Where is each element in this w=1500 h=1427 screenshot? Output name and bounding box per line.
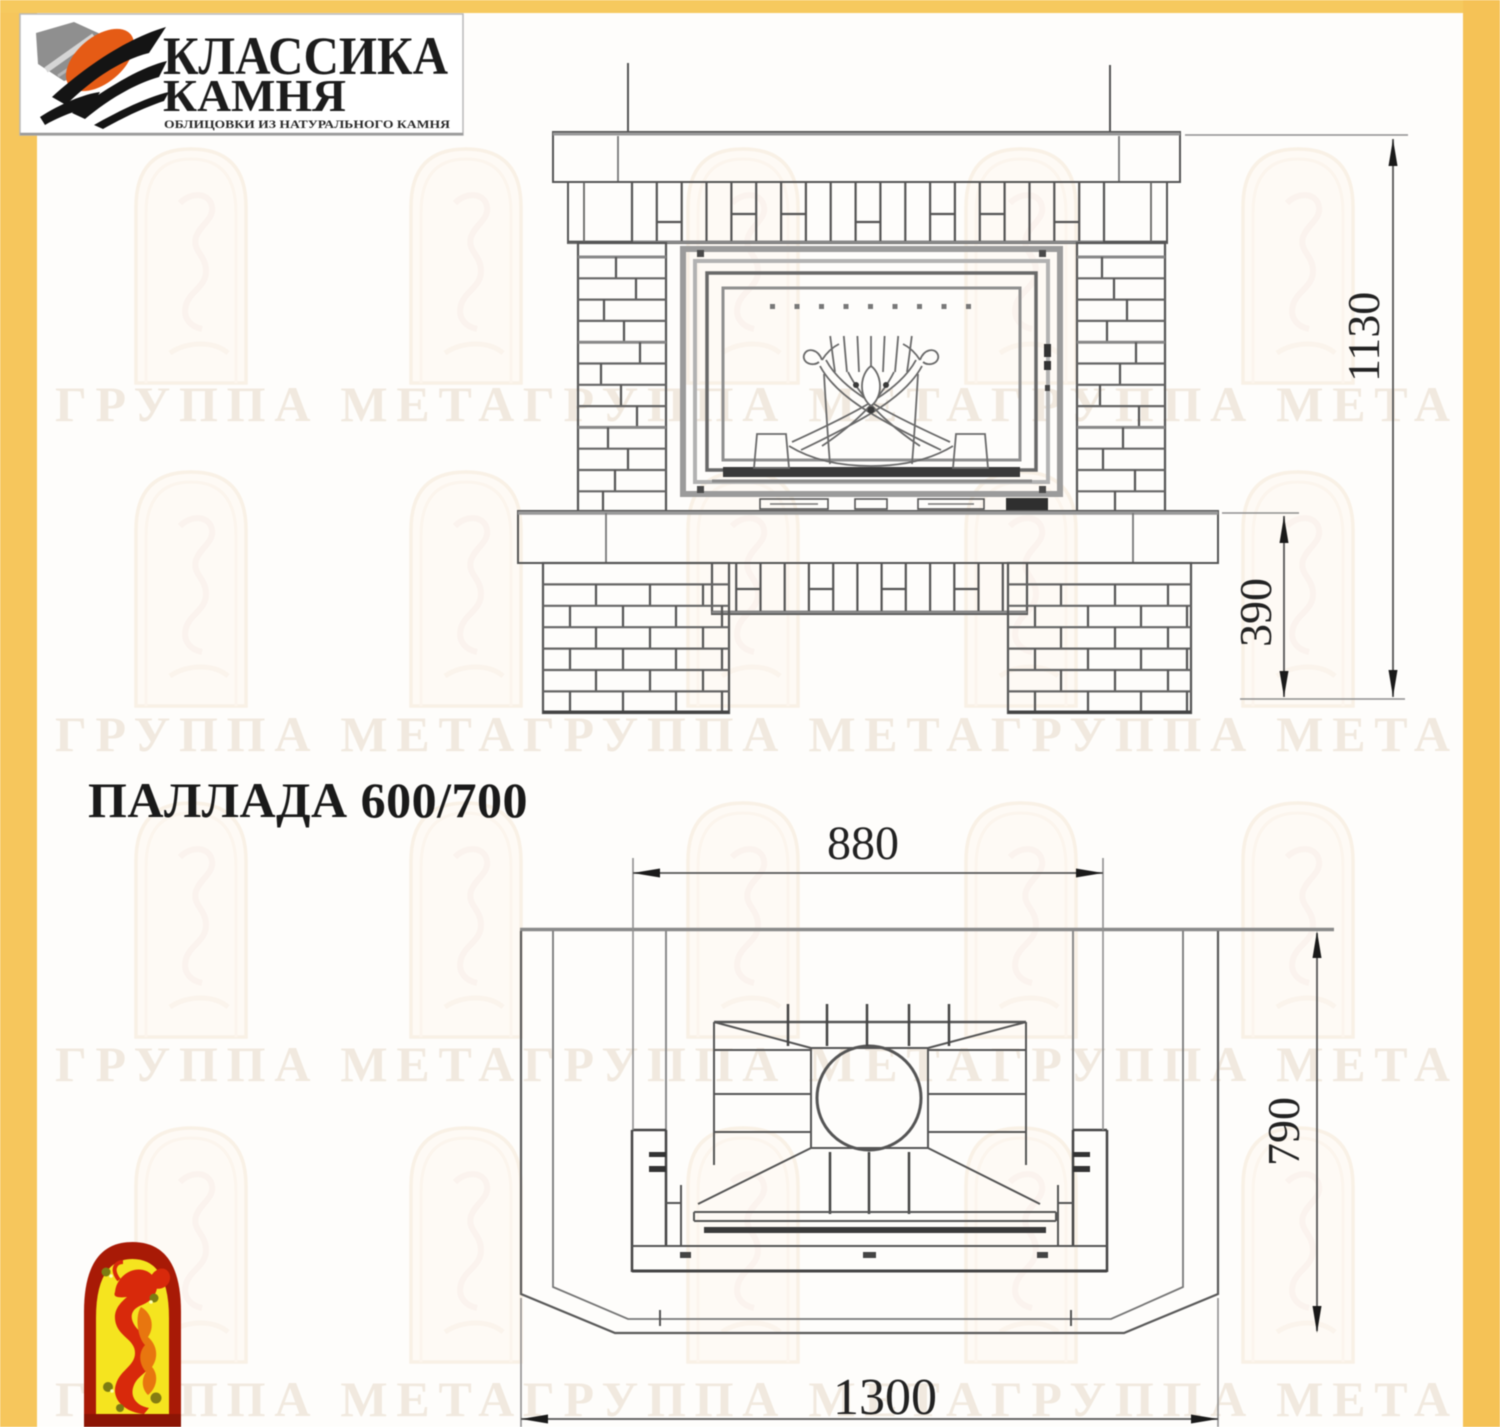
svg-text:ГРУППА МЕТАГРУППА МЕТАГРУППА М: ГРУППА МЕТАГРУППА МЕТАГРУППА МЕТА bbox=[55, 376, 1450, 432]
svg-text:ГРУППА МЕТАГРУППА МЕТАГРУППА М: ГРУППА МЕТАГРУППА МЕТАГРУППА МЕТА bbox=[55, 706, 1450, 762]
svg-text:КАМНЯ: КАМНЯ bbox=[163, 70, 346, 121]
svg-text:880: 880 bbox=[827, 817, 899, 870]
svg-text:390: 390 bbox=[1230, 578, 1281, 647]
svg-text:1130: 1130 bbox=[1338, 292, 1389, 382]
svg-text:790: 790 bbox=[1258, 1097, 1309, 1166]
svg-text:ГРУППА МЕТАГРУППА МЕТАГРУППА М: ГРУППА МЕТАГРУППА МЕТАГРУППА МЕТА bbox=[55, 1036, 1450, 1092]
svg-text:ПАЛЛАДА 600/700: ПАЛЛАДА 600/700 bbox=[88, 772, 528, 828]
svg-text:1300: 1300 bbox=[833, 1369, 937, 1426]
svg-text:ОБЛИЦОВКИ ИЗ НАТУРАЛЬНОГО КАМН: ОБЛИЦОВКИ ИЗ НАТУРАЛЬНОГО КАМНЯ bbox=[164, 119, 451, 131]
